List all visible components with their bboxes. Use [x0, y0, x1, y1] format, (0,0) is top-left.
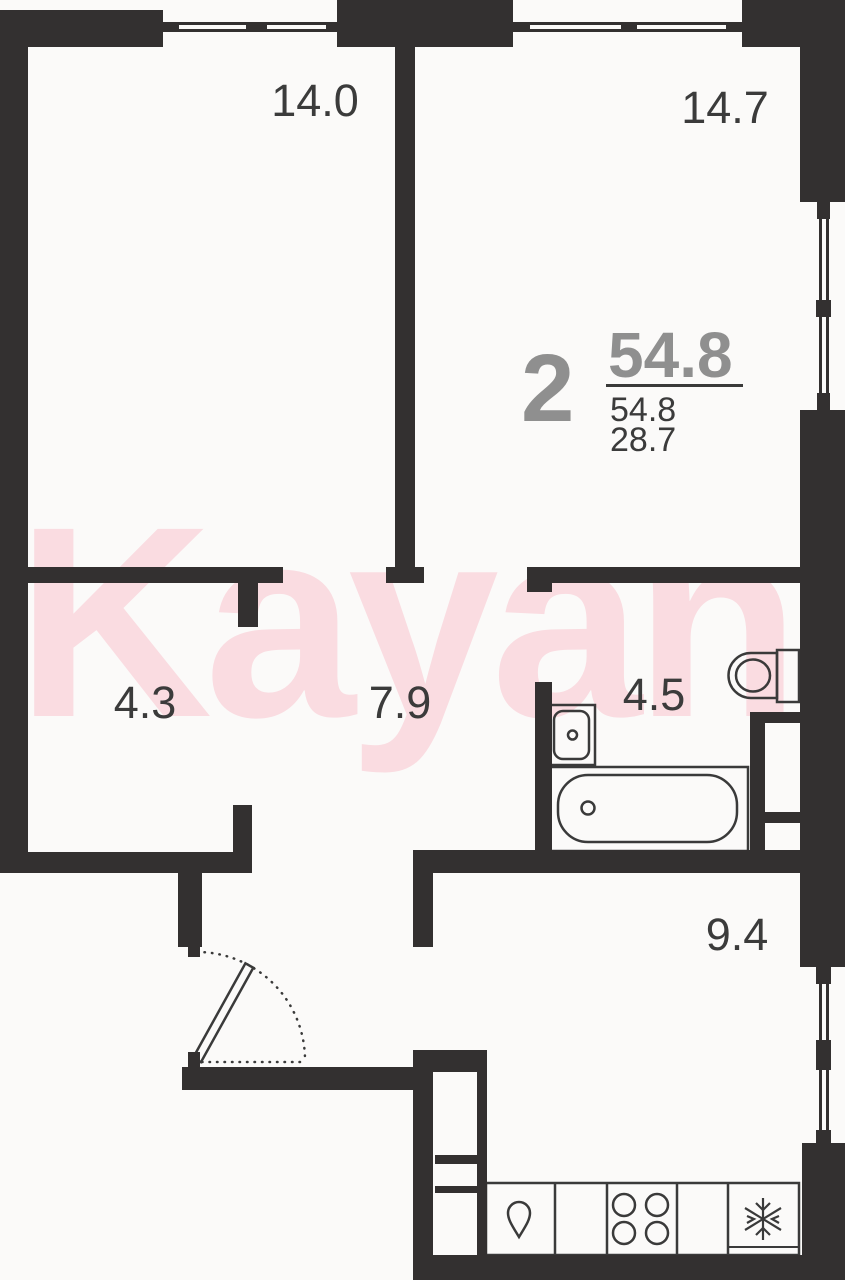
- bathtub: [548, 767, 748, 851]
- wall-duct-divider: [750, 812, 800, 823]
- window-bedroom-left-mullion: [246, 22, 267, 32]
- wall-top-middle: [337, 0, 513, 47]
- wall-kitchen-cross2: [435, 1186, 487, 1193]
- wall-closet-stub-top: [238, 583, 258, 627]
- window-side-bedroom-jamb-b: [817, 393, 830, 410]
- wall-entry-jamb-notch: [188, 947, 200, 957]
- summary-area-living: 28.7: [610, 423, 676, 457]
- wall-bottom: [413, 1255, 845, 1280]
- room-label-bedroom-right: 14.7: [655, 85, 795, 130]
- window-bedroom-left-jamb-b: [326, 22, 337, 32]
- kitchen-sink-drop-icon: [508, 1202, 530, 1237]
- summary-area-headline: 54.8: [608, 323, 733, 387]
- window-side-kitchen-jamb-a: [816, 967, 831, 984]
- window-bedroom-right-jamb-a: [513, 22, 530, 32]
- wall-bedroom-divider: [395, 47, 415, 567]
- wall-kitchen-cross1: [435, 1155, 487, 1164]
- summary-divider-line: [606, 384, 743, 387]
- wall-entry-hinge-notch: [188, 1052, 200, 1067]
- window-bedroom-left-jamb-a: [163, 22, 179, 32]
- entry-door-swing: [193, 952, 305, 1062]
- floorplan: Kayan: [0, 0, 845, 1280]
- wall-duct-left: [750, 712, 765, 852]
- entry-door-leaf: [193, 963, 253, 1062]
- wall-right-middle: [800, 410, 845, 967]
- wall-right-upper: [800, 0, 845, 202]
- window-side-bedroom-jamb-a: [817, 202, 830, 219]
- wall-bathroom-left: [535, 682, 552, 852]
- wall-kitchen-left-upper: [413, 852, 433, 947]
- window-side-kitchen-mullion: [816, 1040, 831, 1070]
- wall-left: [0, 10, 28, 873]
- wall-band-left: [28, 567, 283, 583]
- wall-entry-jamb: [178, 873, 202, 947]
- window-bedroom-right-jamb-b: [726, 22, 742, 32]
- room-label-hallway: 7.9: [330, 680, 470, 725]
- wall-band-right: [527, 567, 800, 583]
- wall-closet-stub-bottom: [233, 805, 252, 852]
- stove-burners-icon: [613, 1194, 668, 1244]
- wall-bathroom-door-stub: [527, 583, 552, 592]
- window-side-bedroom-mullion: [816, 300, 831, 317]
- fridge-snowflake-icon: [745, 1198, 781, 1240]
- room-label-kitchen: 9.4: [667, 912, 807, 957]
- wall-band-lower-left: [0, 852, 252, 873]
- toilet: [729, 650, 800, 702]
- wall-bedroom-divider-cap: [386, 567, 424, 583]
- room-label-bathroom: 4.5: [584, 672, 724, 717]
- wall-kitchen-inner: [477, 1072, 487, 1257]
- wall-vestibule-bottom: [182, 1067, 433, 1090]
- room-label-closet: 4.3: [75, 680, 215, 725]
- room-label-bedroom-left: 14.0: [245, 78, 385, 123]
- wall-band-lower-right: [413, 850, 845, 873]
- window-side-kitchen-jamb-b: [816, 1130, 831, 1144]
- window-bedroom-right-mullion: [621, 22, 637, 32]
- summary-rooms-count: 2: [521, 341, 574, 437]
